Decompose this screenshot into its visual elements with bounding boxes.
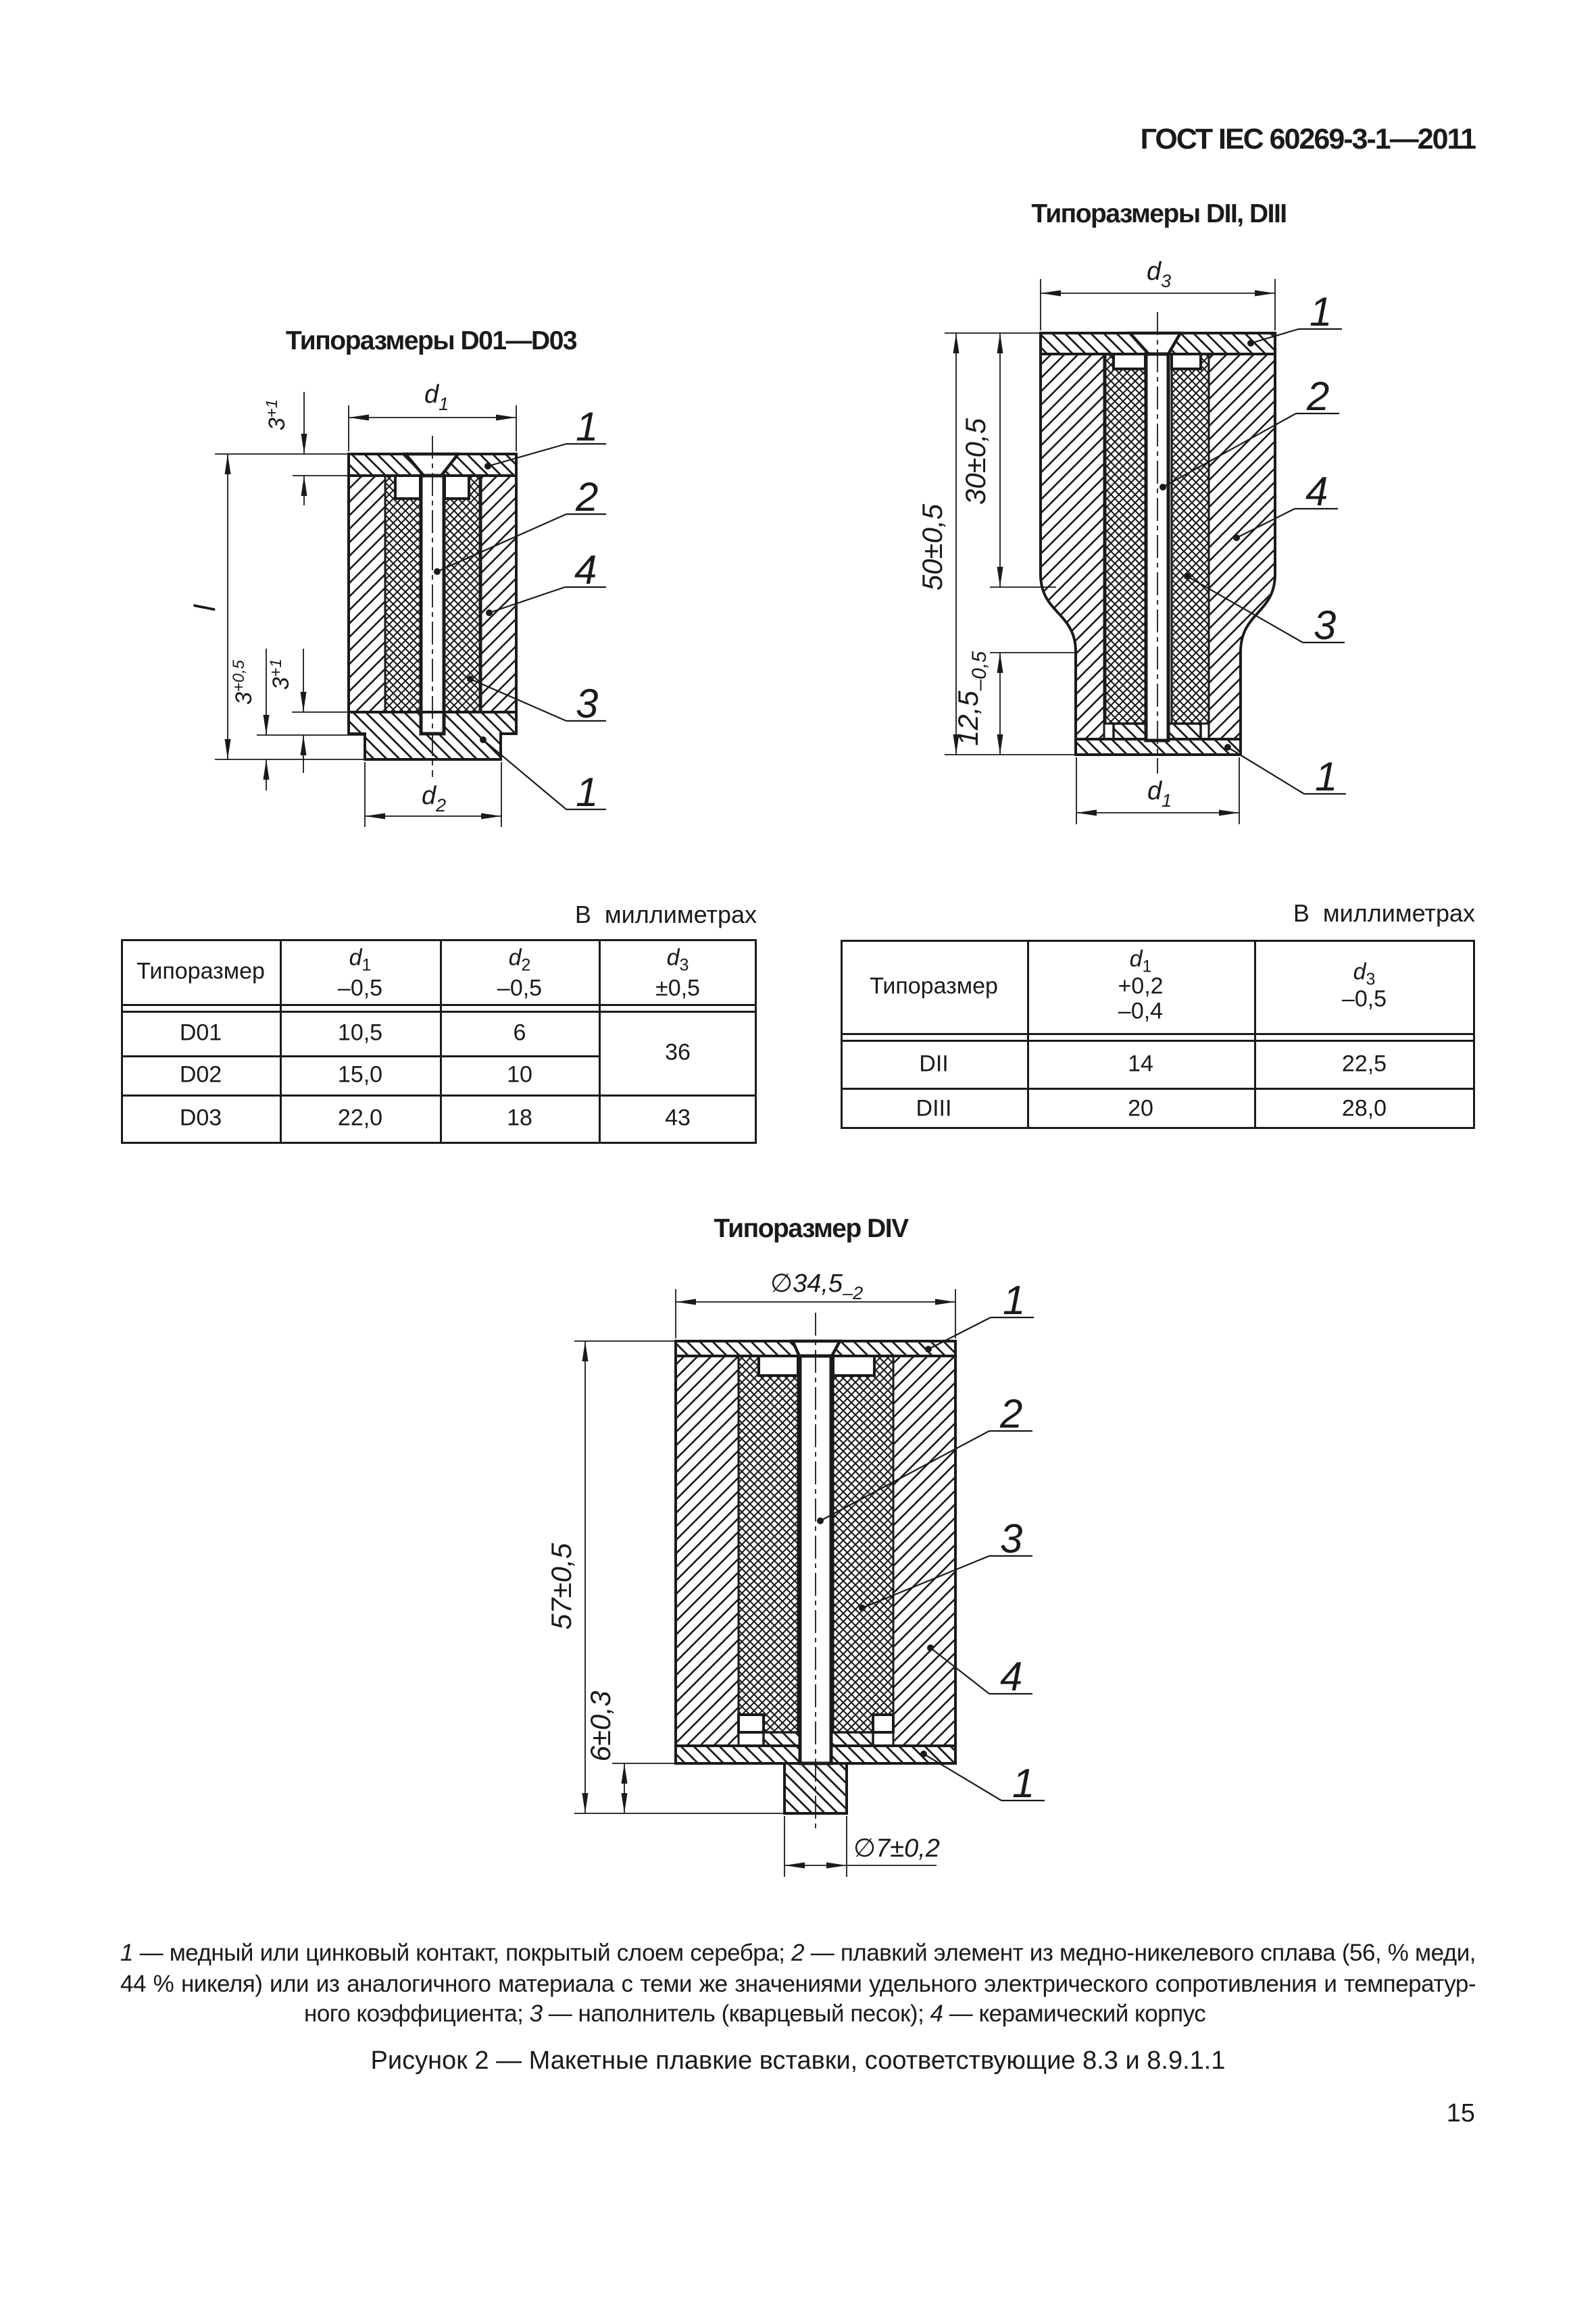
svg-text:3: 3	[576, 681, 598, 726]
svg-text:12,5–0,5: 12,5–0,5	[952, 651, 991, 746]
svg-text:1: 1	[1012, 1761, 1034, 1806]
svg-text:1: 1	[1310, 289, 1332, 334]
svg-text:30±0,5: 30±0,5	[959, 418, 991, 505]
svg-text:d1: d1	[424, 380, 449, 414]
svg-text:3: 3	[1314, 603, 1336, 648]
svg-text:1: 1	[576, 404, 598, 449]
svg-text:d3: d3	[1147, 257, 1171, 291]
svg-text:4: 4	[574, 547, 597, 593]
svg-text:d1: d1	[1147, 777, 1172, 811]
svg-text:2: 2	[575, 474, 598, 520]
svg-text:3+1: 3+1	[263, 399, 290, 430]
svg-text:∅7±0,2: ∅7±0,2	[853, 1834, 940, 1863]
svg-text:1: 1	[576, 770, 598, 815]
svg-text:6±0,3: 6±0,3	[584, 1691, 616, 1762]
svg-text:2: 2	[1306, 374, 1329, 419]
svg-text:57±0,5: 57±0,5	[545, 1542, 577, 1630]
svg-text:2: 2	[999, 1391, 1022, 1436]
svg-text:1: 1	[1003, 1278, 1025, 1323]
svg-text:l: l	[189, 604, 222, 611]
svg-text:d2: d2	[422, 782, 446, 815]
svg-text:3: 3	[1000, 1516, 1022, 1561]
svg-text:1: 1	[1315, 754, 1337, 799]
svg-text:3+0,5: 3+0,5	[230, 659, 257, 705]
svg-text:3+1: 3+1	[267, 659, 294, 690]
svg-text:4: 4	[1000, 1654, 1022, 1699]
svg-text:∅34,5–2: ∅34,5–2	[770, 1269, 863, 1303]
svg-text:50±0,5: 50±0,5	[916, 503, 948, 590]
svg-text:4: 4	[1305, 469, 1328, 514]
